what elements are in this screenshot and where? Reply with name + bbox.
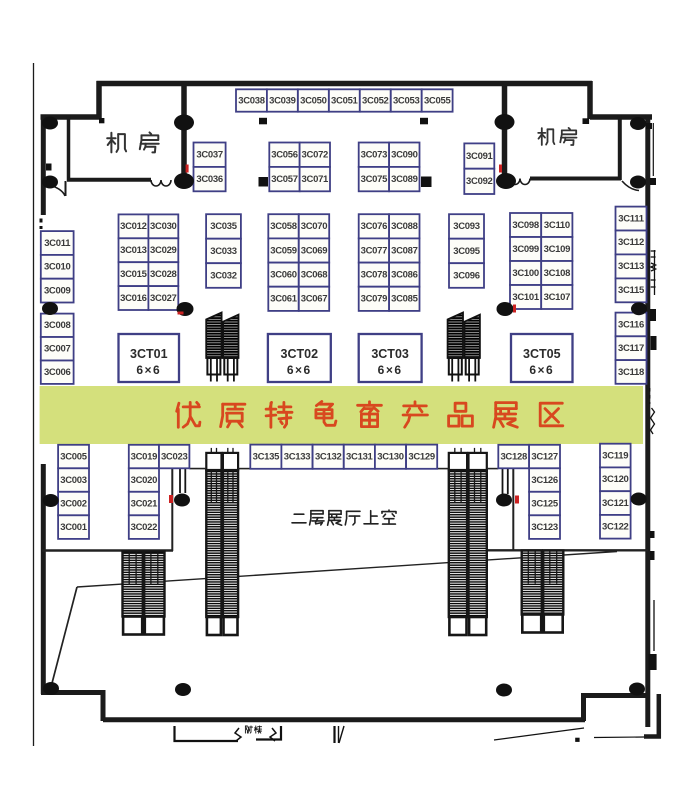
svg-text:3C122: 3C122 (602, 522, 629, 533)
svg-text:3C039: 3C039 (269, 95, 296, 106)
svg-text:3C135: 3C135 (253, 452, 281, 463)
svg-text:3C091: 3C091 (466, 151, 494, 162)
svg-text:3C111: 3C111 (618, 213, 644, 224)
svg-text:3C012: 3C012 (120, 221, 147, 232)
svg-text:3C019: 3C019 (131, 451, 158, 462)
svg-text:3C059: 3C059 (270, 245, 297, 256)
svg-text:3C008: 3C008 (44, 320, 71, 331)
svg-text:3C069: 3C069 (301, 245, 328, 256)
svg-text:3C005: 3C005 (60, 451, 88, 462)
svg-text:3C072: 3C072 (302, 150, 329, 161)
svg-text:3C003: 3C003 (60, 475, 87, 486)
svg-text:3C107: 3C107 (544, 292, 571, 303)
svg-text:3C001: 3C001 (60, 522, 88, 533)
svg-text:3C013: 3C013 (120, 245, 147, 256)
svg-text:3C099: 3C099 (512, 244, 539, 255)
svg-text:3C036: 3C036 (196, 174, 223, 185)
svg-text:3C022: 3C022 (131, 522, 158, 533)
svg-text:3C077: 3C077 (361, 245, 388, 256)
svg-text:3C029: 3C029 (150, 245, 177, 256)
svg-text:3C055: 3C055 (424, 95, 452, 106)
svg-text:3C079: 3C079 (361, 294, 388, 305)
svg-text:3C056: 3C056 (271, 150, 298, 161)
svg-text:3C020: 3C020 (131, 475, 158, 486)
svg-text:3C090: 3C090 (391, 150, 418, 161)
svg-text:3C126: 3C126 (531, 475, 558, 486)
svg-text:3CT03: 3CT03 (371, 347, 409, 361)
svg-text:3C100: 3C100 (512, 268, 539, 279)
svg-text:3C057: 3C057 (271, 174, 298, 185)
svg-text:3C030: 3C030 (150, 221, 177, 232)
svg-text:3C050: 3C050 (300, 95, 327, 106)
svg-text:3C052: 3C052 (362, 95, 389, 106)
svg-text:3C123: 3C123 (531, 522, 558, 533)
svg-text:3C028: 3C028 (150, 269, 177, 280)
svg-text:3C127: 3C127 (531, 451, 558, 462)
svg-text:6×6: 6×6 (287, 363, 312, 377)
svg-text:3C053: 3C053 (393, 95, 420, 106)
svg-text:3C037: 3C037 (196, 150, 223, 161)
svg-text:3C087: 3C087 (391, 245, 418, 256)
svg-text:3C071: 3C071 (302, 174, 330, 185)
svg-text:3C125: 3C125 (531, 498, 559, 509)
svg-text:3C051: 3C051 (331, 95, 359, 106)
svg-text:3C035: 3C035 (210, 221, 238, 232)
svg-text:3C113: 3C113 (618, 261, 644, 272)
svg-text:3C133: 3C133 (284, 452, 311, 463)
svg-text:3C076: 3C076 (361, 221, 388, 232)
svg-text:6×6: 6×6 (378, 363, 403, 377)
svg-text:3C108: 3C108 (544, 268, 571, 279)
svg-text:3C116: 3C116 (618, 319, 644, 330)
svg-text:3C058: 3C058 (270, 221, 297, 232)
svg-text:3CT01: 3CT01 (130, 347, 168, 361)
svg-text:3C085: 3C085 (391, 294, 419, 305)
svg-text:3C121: 3C121 (602, 498, 630, 509)
svg-text:3C119: 3C119 (602, 450, 628, 461)
svg-text:3CT05: 3CT05 (523, 347, 561, 361)
svg-text:3C061: 3C061 (270, 294, 298, 305)
svg-text:3C093: 3C093 (453, 221, 480, 232)
svg-text:3C027: 3C027 (150, 293, 177, 304)
svg-text:3C060: 3C060 (270, 269, 297, 280)
svg-text:3C075: 3C075 (361, 174, 389, 185)
svg-text:3C110: 3C110 (544, 220, 570, 231)
svg-text:6×6: 6×6 (136, 363, 161, 377)
svg-text:3C132: 3C132 (315, 452, 342, 463)
svg-text:3C112: 3C112 (618, 237, 644, 248)
svg-text:3C007: 3C007 (44, 344, 71, 355)
svg-text:3C088: 3C088 (391, 221, 418, 232)
svg-text:3C073: 3C073 (361, 150, 388, 161)
svg-text:3C067: 3C067 (301, 294, 328, 305)
svg-text:3C109: 3C109 (544, 244, 571, 255)
svg-text:3C092: 3C092 (466, 176, 493, 187)
svg-text:3C015: 3C015 (120, 269, 148, 280)
svg-text:6×6: 6×6 (529, 363, 554, 377)
svg-text:3C032: 3C032 (210, 270, 237, 281)
svg-text:3C011: 3C011 (44, 238, 71, 249)
svg-text:3C070: 3C070 (301, 221, 328, 232)
svg-text:3C038: 3C038 (238, 95, 265, 106)
svg-text:3C068: 3C068 (301, 269, 328, 280)
svg-text:3C009: 3C009 (44, 285, 71, 296)
svg-text:3C096: 3C096 (453, 270, 480, 281)
svg-text:3C010: 3C010 (44, 262, 71, 273)
svg-text:3CT02: 3CT02 (281, 347, 319, 361)
svg-text:3C120: 3C120 (602, 474, 629, 485)
svg-text:3C098: 3C098 (512, 220, 539, 231)
svg-text:3C128: 3C128 (500, 451, 527, 462)
svg-text:3C016: 3C016 (120, 293, 147, 304)
svg-text:3C115: 3C115 (618, 285, 645, 296)
svg-text:3C118: 3C118 (618, 367, 644, 378)
svg-text:3C006: 3C006 (44, 367, 71, 378)
svg-text:3C089: 3C089 (391, 174, 418, 185)
svg-text:3C095: 3C095 (453, 246, 481, 257)
svg-text:3C129: 3C129 (408, 452, 435, 463)
svg-text:3C023: 3C023 (161, 451, 188, 462)
svg-text:3C033: 3C033 (210, 246, 237, 257)
svg-text:3C078: 3C078 (361, 269, 388, 280)
svg-text:3C086: 3C086 (391, 269, 418, 280)
svg-text:3C101: 3C101 (512, 292, 540, 303)
svg-text:3C117: 3C117 (618, 343, 644, 354)
svg-text:3C130: 3C130 (377, 452, 404, 463)
svg-text:3C021: 3C021 (131, 498, 159, 509)
svg-text:3C002: 3C002 (60, 498, 87, 509)
svg-text:3C131: 3C131 (346, 452, 374, 463)
